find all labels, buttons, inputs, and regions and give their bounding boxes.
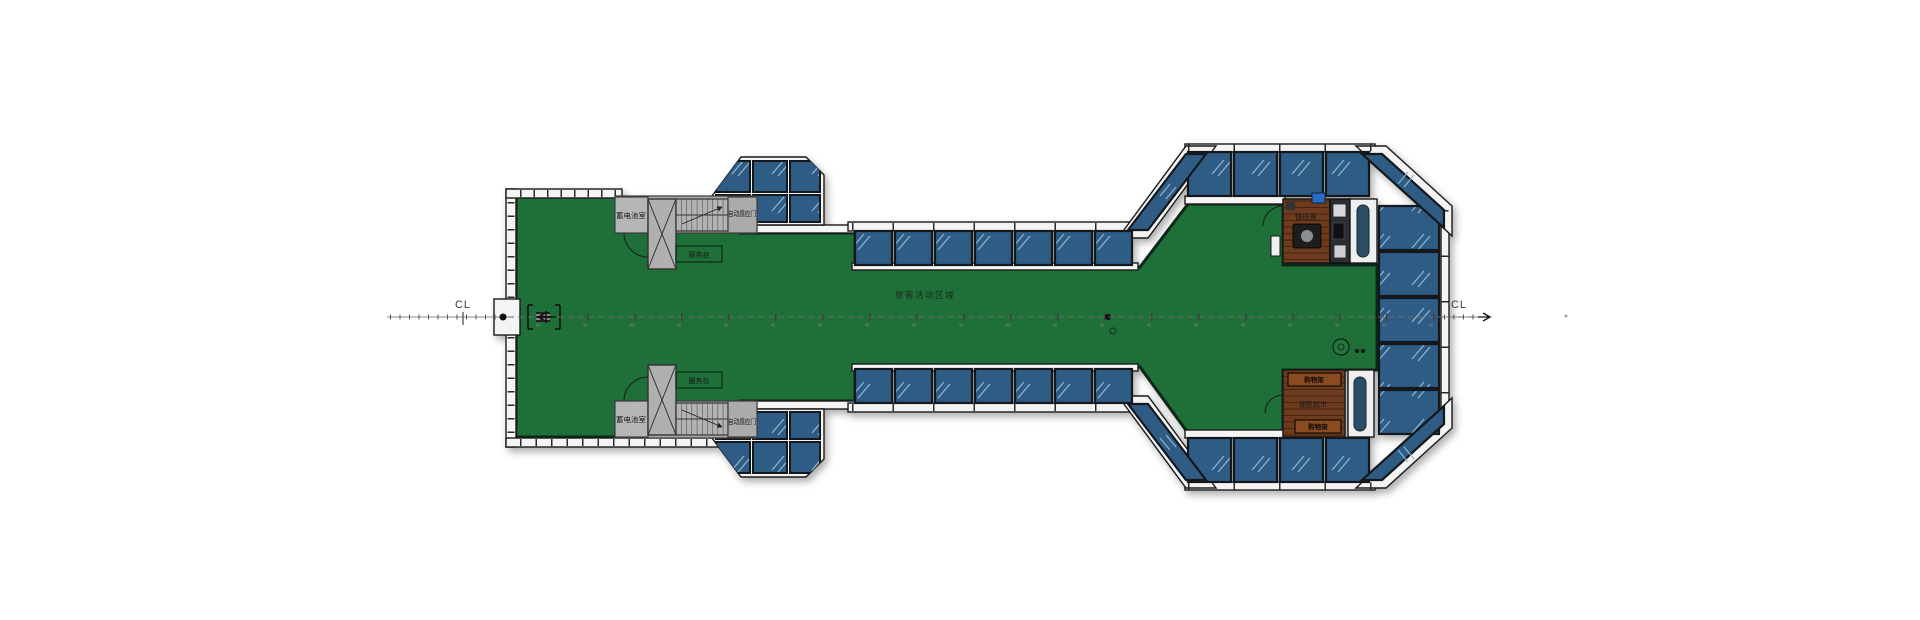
floor-plan-canvas: CL CL 旅客活动区域 服务台 服务台 蓄电池室 蓄电池室 自动感应门 自动感… <box>0 0 1920 620</box>
duty-room-label: 值班室 <box>1295 212 1317 221</box>
room-cell <box>1326 152 1369 196</box>
room-cell <box>1095 231 1132 265</box>
room-cell <box>1379 344 1439 388</box>
room-cell <box>1015 231 1052 265</box>
fixture <box>1333 204 1346 217</box>
room-cell <box>935 369 972 403</box>
battery-room-label-bottom: 蓄电池室 <box>616 415 646 424</box>
escalator-room-top <box>1350 199 1377 263</box>
office-cabinet <box>1286 202 1295 210</box>
auto-door-label-top: 自动感应门 <box>728 209 756 218</box>
wall-mid-top <box>744 225 858 233</box>
main-area-label: 旅客活动区域 <box>895 290 955 300</box>
room-cells-right-bottom <box>1188 438 1369 482</box>
room-cell <box>1055 369 1092 403</box>
room-cells-corridor-bottom <box>855 369 1132 403</box>
room-cell <box>1326 438 1369 482</box>
room-cell <box>1379 298 1439 342</box>
escalator-room-bottom <box>1348 370 1374 437</box>
floor-plan-drawing: CL CL 旅客活动区域 服务台 服务台 蓄电池室 蓄电池室 自动感应门 自动感… <box>0 0 1920 620</box>
room-cells-corridor-top <box>855 231 1132 265</box>
room-cell <box>1379 252 1439 296</box>
service-desk-label-bottom: 服务台 <box>689 376 710 385</box>
arrow-symbol-right <box>1478 313 1490 321</box>
room-cell <box>895 231 932 265</box>
room-cell <box>1055 231 1092 265</box>
room-cell <box>1015 369 1052 403</box>
wall-right-hall-top <box>1185 196 1285 204</box>
escalator-symbol <box>1354 377 1366 431</box>
centerline-end-dot <box>1565 315 1568 318</box>
room-cell <box>790 412 820 439</box>
auto-door-label-bottom: 自动感应门 <box>728 417 756 426</box>
room-cell <box>1095 369 1132 403</box>
wall-mid-bottom <box>744 401 858 409</box>
room-cell <box>855 369 892 403</box>
wall-top-left <box>506 189 622 198</box>
fixture <box>1333 223 1344 239</box>
shop-area-label: 便民超市 <box>1299 400 1327 409</box>
room-cell <box>753 161 787 192</box>
room-cell <box>716 442 750 473</box>
fixture <box>1334 245 1346 258</box>
cl-label-right: CL <box>1451 299 1467 311</box>
room-cell <box>975 369 1012 403</box>
utility-room <box>1330 199 1350 263</box>
room-cell <box>753 412 787 439</box>
room-cells-right-column <box>1379 206 1439 434</box>
fixture-dot <box>1361 349 1365 353</box>
room-cell <box>1234 438 1277 482</box>
escalator-symbol <box>1357 205 1369 257</box>
room-cell <box>1280 152 1323 196</box>
ticket-machine <box>1271 236 1280 256</box>
room-cell <box>855 231 892 265</box>
wall-bottom-left <box>506 438 748 447</box>
room-cell <box>1280 438 1323 482</box>
room-cell <box>753 195 787 222</box>
room-cell <box>753 442 787 473</box>
room-cell <box>895 369 932 403</box>
room-cells-right-top <box>1188 152 1369 196</box>
room-cell <box>790 195 820 222</box>
room-cell <box>1234 152 1277 196</box>
cl-label-left: CL <box>455 299 471 311</box>
survey-point <box>500 314 507 321</box>
monitor-icon <box>1312 193 1325 203</box>
office-chair <box>1301 230 1314 243</box>
wall-right-hall-bottom <box>1185 430 1285 438</box>
room-cell <box>935 231 972 265</box>
battery-room-label-top: 蓄电池室 <box>616 211 646 220</box>
service-desk-label-top: 服务台 <box>689 250 710 259</box>
shelf-label-bottom: 购物架 <box>1308 422 1328 431</box>
shelf-label-top: 购物架 <box>1304 375 1324 384</box>
room-cell <box>716 161 750 192</box>
round-table-symbol <box>1333 339 1349 355</box>
fixture-dot <box>1355 349 1359 353</box>
room-cell <box>975 231 1012 265</box>
